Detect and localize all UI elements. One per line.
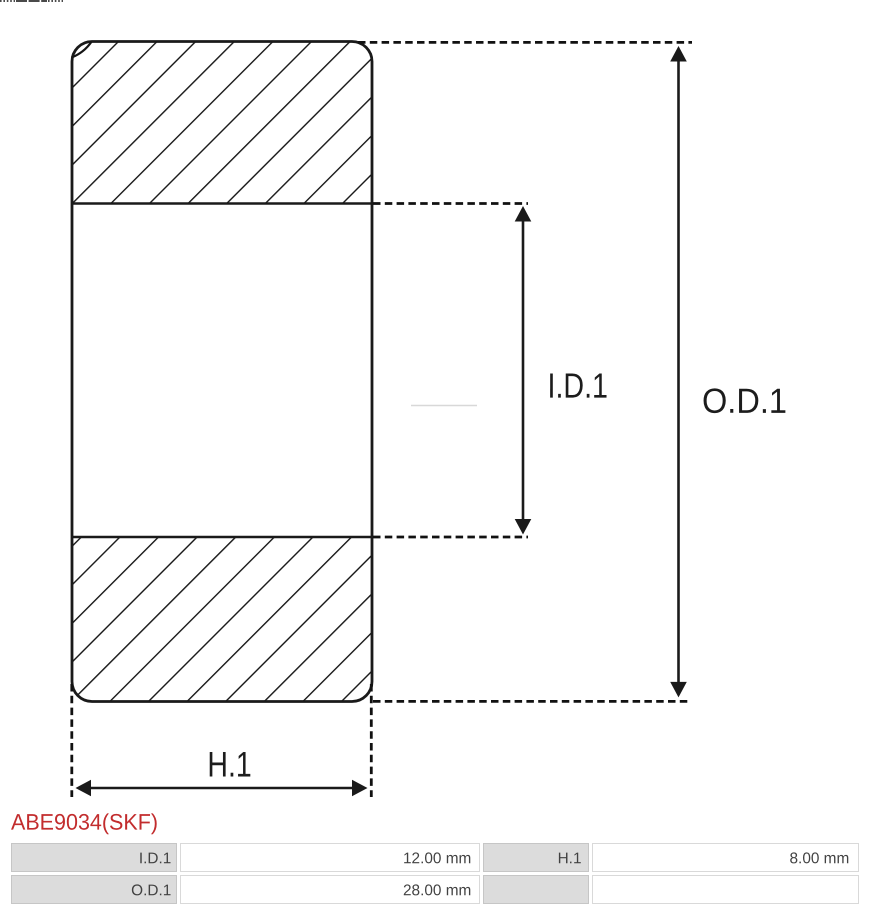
svg-text:H.1: H.1: [558, 850, 582, 867]
svg-text:I.D.1: I.D.1: [547, 367, 608, 406]
svg-text:28.00 mm: 28.00 mm: [403, 882, 471, 899]
svg-text:8.00 mm: 8.00 mm: [789, 850, 849, 867]
svg-text:H.1: H.1: [207, 745, 251, 784]
svg-text:12.00 mm: 12.00 mm: [403, 850, 471, 867]
svg-text:O.D.1: O.D.1: [131, 882, 171, 899]
svg-text:O.D.1: O.D.1: [702, 382, 787, 421]
svg-text:I.D.1: I.D.1: [139, 850, 171, 867]
svg-text:ABE9034(SKF): ABE9034(SKF): [11, 810, 158, 835]
